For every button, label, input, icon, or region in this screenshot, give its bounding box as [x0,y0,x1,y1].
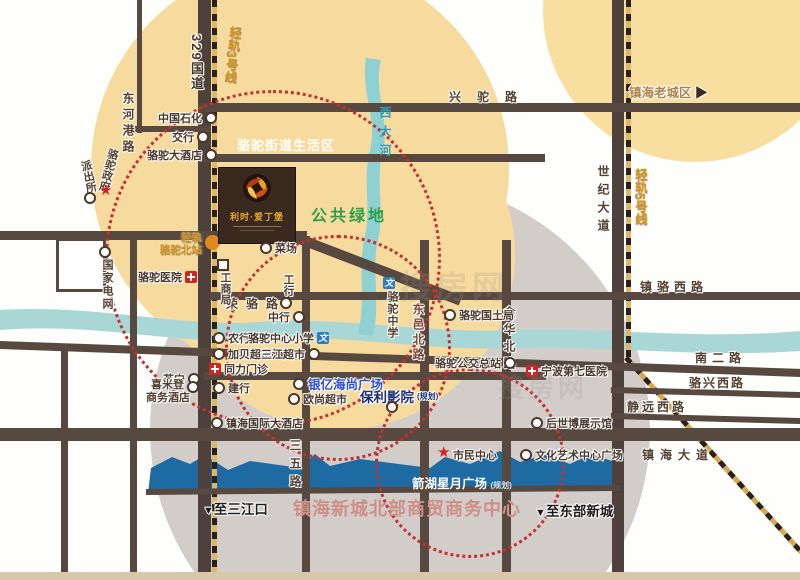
ximideng-line1: 喜米登 [146,379,184,392]
road-label-donghegang: 东河港路 [120,92,137,156]
poi-central-primary: 骆驼中心小学文 [248,330,329,346]
road-label-nan-er: 南二路 [695,349,746,366]
poi-ximideng-label: 喜米登 商务酒店 [146,379,184,404]
poi-label: 后世博展示馆 [546,415,612,431]
poi-circle-icon [308,348,320,360]
poi-abc: 农行 [213,330,250,346]
transit-label-line5: 轻轨5号线 [631,168,650,225]
poi-poly-cinema-marker [386,401,398,413]
poi-circle-icon [280,297,292,309]
road-label-zhenhai-ave: 镇海大道 [642,446,714,463]
poi-label: 交行 [172,129,194,145]
poi-circle-icon [288,393,300,405]
poi-land-bureau: 骆驼国土局 [444,307,514,323]
east-new-town-text: 至东部新城 [546,504,614,519]
poi-circle-icon [293,378,305,390]
road-label-luoxing-west: 骆兴西路 [689,374,745,391]
arrow-down-icon: ▼ [535,507,546,519]
poi-middle-school-marker: 文 [383,277,395,289]
poi-bocom: 交行 [172,129,209,145]
watermark: 搜房网 [498,368,588,405]
poi-circle-icon [293,311,305,323]
poi-state-grid-label: 国家电网 [99,259,115,311]
road-label-329: 329国道 [187,34,206,92]
water-label-xidahe: 西大河 [377,106,394,163]
poi-icbc-label: 工行 [280,274,296,296]
poi-auchan: 欧尚超市 [288,391,347,407]
hospital-cross-icon [185,271,197,283]
project-name: 利时·爱丁堡 [219,210,295,223]
poi-circle-icon [260,242,272,254]
poi-circle-icon [213,348,225,360]
project-swirl-logo [240,172,274,204]
poi-circle-icon [84,192,96,204]
poi-circle-icon [197,131,209,143]
area-label-cbd: 镇海新城北部商贸商务中心 [293,495,521,521]
lake-name-text: 箭湖星月广场 [412,477,487,491]
logo-divider [233,226,281,227]
lake-planned-note: (规划) [491,481,512,490]
poi-circle-icon [444,309,456,321]
poi-circle-icon [520,449,532,461]
poi-tongli: 同力门诊 [209,361,268,377]
area-label-green-space: 公共绿地 [311,202,387,226]
poi-label: 骆驼大酒店 [147,147,202,163]
poi-label: 骆驼医院 [138,269,182,285]
poi-circle-icon [205,149,217,161]
poi-market: 菜场 [260,240,297,256]
arrow-right-icon: ▶ [695,86,708,100]
poi-sanjiang: 三江超市 [261,346,320,362]
school-icon: 文 [383,277,395,289]
bottom-border-strip [0,572,800,580]
station-line1: 轻轨 [150,233,202,245]
poi-middle-school-label: 骆驼中学 [384,291,400,339]
poi-aic-label: 工商局 [217,272,233,305]
poi-civic-center: 市民中心 [453,447,497,463]
poi-planned-note: (规划) [417,391,438,402]
poi-luotuo-hospital: 骆驼医院 [138,269,197,285]
ximideng-line2: 商务酒店 [146,392,184,405]
old-town-text: 镇海老城区 [629,86,692,100]
poi-luotuo-hotel: 骆驼大酒店 [147,147,217,163]
lake-label: 箭湖星月广场 (规划) [412,473,512,492]
poi-boc: 中行 [268,309,305,325]
poi-square-icon [217,259,229,271]
poi-icbc-marker [280,297,292,309]
poi-label: 建行 [228,380,250,396]
poi-label: 骆驼公交总站 [435,355,501,371]
poi-circle-icon [205,112,217,124]
sanjiangkou-text: 至三江口 [214,502,268,517]
road-far-west-vertical [61,345,68,580]
road-label-jingyuan-west: 静远西路 [627,398,687,415]
area-label-old-town: 镇海老城区 ▶ [629,82,708,101]
poi-label: 欧尚超市 [303,391,347,407]
poi-label: 中行 [268,309,290,325]
road-label-dongyi-north: 东邑北路 [410,303,427,363]
poi-zhenhai-intl-hotel: 镇海国际大酒店 [211,415,303,431]
poi-expo-hall: 后世博展示馆 [531,415,612,431]
poi-label: 镇海国际大酒店 [226,415,303,431]
poi-circle-icon [213,332,225,344]
poi-ximideng-marker [187,381,199,393]
poi-circle-icon [386,401,398,413]
poi-label: 菜场 [275,240,297,256]
direction-sanjiangkou: ▼至三江口 [203,498,268,518]
area-label-street-life: 骆驼街道生活区 [237,135,335,154]
poi-label: 农行 [228,330,250,346]
poi-ccb: 建行 [213,380,250,396]
poi-circle-icon [211,417,223,429]
station-line2: 骆驼北站 [150,245,202,257]
poi-poly-cinema: 保利影院(规划) [360,386,438,406]
poi-label: 市民中心 [453,447,497,463]
civic-center-star-icon: ★ [437,445,450,460]
poi-art-center: 文化艺术中心广场 [520,447,623,463]
government-star-icon: ★ [99,183,112,198]
school-icon: 文 [317,332,329,344]
poi-label: 骆驼国土局 [459,307,514,323]
poi-circle-icon [187,381,199,393]
road-label-sanwu: 三五路 [287,439,304,493]
road-shiji-avenue [612,0,624,580]
road-label-shiji: 世纪大道 [595,165,612,237]
poi-circle-icon [531,417,543,429]
road-label-xingtuo: 兴驼路 [449,88,533,105]
project-logo-plate: 利时·爱丁堡 [218,167,296,244]
poi-label: 中国石化 [158,110,202,126]
road-donghegang [137,0,142,133]
logo-divider-small [240,230,274,231]
poi-circle-icon [99,246,111,258]
poi-circle-icon [213,382,225,394]
arrow-down-icon: ▼ [203,505,214,517]
poi-label: 同力门诊 [224,361,268,377]
watermark: 搜房网 [400,262,508,308]
location-map: 利时·爱丁堡 329国道 东河港路 兴驼路 镇海老城区 ▶ 轻轨3号线 轻轨5号… [0,0,800,580]
poi-aic-marker [217,259,229,271]
road-label-zhenluo-west: 镇骆西路 [640,278,708,295]
transit-label-north-station: 轻轨 骆驼北站 [150,233,202,256]
poi-label: 文化艺术中心广场 [535,447,623,463]
poi-sinopec: 中国石化 [158,110,217,126]
clinic-cross-icon [209,363,221,375]
poi-label: 三江超市 [261,346,305,362]
poi-label: 骆驼中心小学 [248,330,314,346]
poi-state-grid-marker [99,246,111,258]
direction-east-new-town: ▼至东部新城 [535,500,613,520]
poi-police-marker [84,192,96,204]
